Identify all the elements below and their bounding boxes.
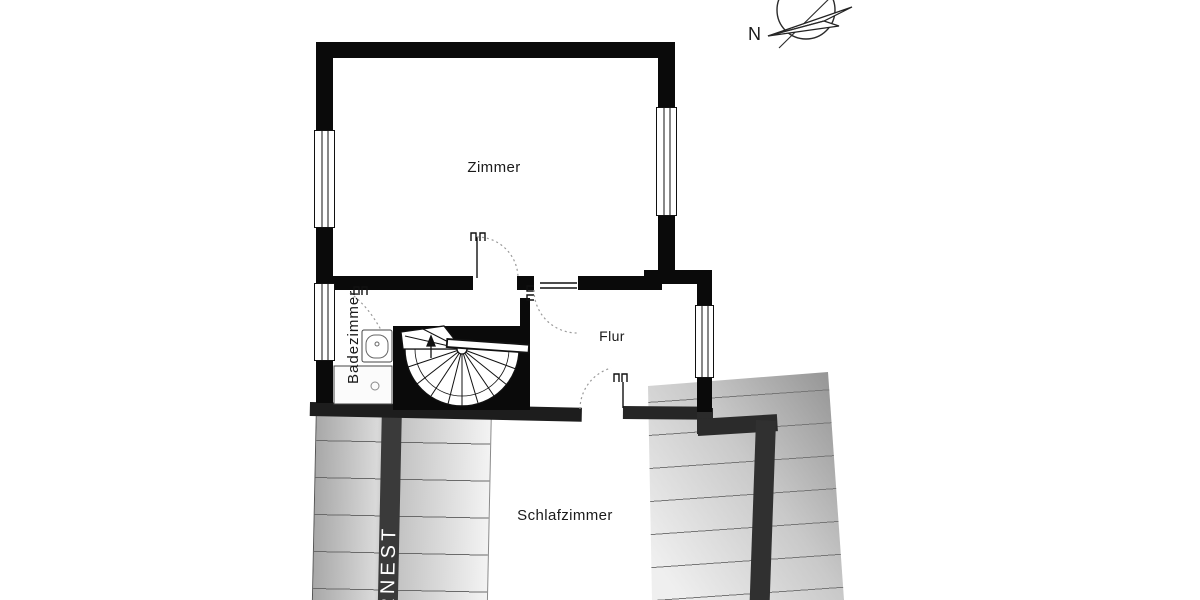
washbasin-icon <box>362 330 392 362</box>
shower-icon <box>334 366 392 404</box>
door-flur <box>527 283 577 333</box>
floor-plan: RNEST <box>0 0 1200 600</box>
room-label-schlafzimmer: Schlafzimmer <box>505 507 625 524</box>
door-zimmer <box>471 233 518 278</box>
door-schlafzimmer <box>580 368 627 409</box>
compass-north-label: N <box>748 24 761 45</box>
room-label-zimmer: Zimmer <box>444 159 544 176</box>
room-label-flur: Flur <box>582 328 642 344</box>
room-label-badezimmer: Badezimmer <box>345 288 362 384</box>
compass-rose-icon <box>768 0 852 48</box>
spiral-staircase-icon <box>401 326 529 406</box>
